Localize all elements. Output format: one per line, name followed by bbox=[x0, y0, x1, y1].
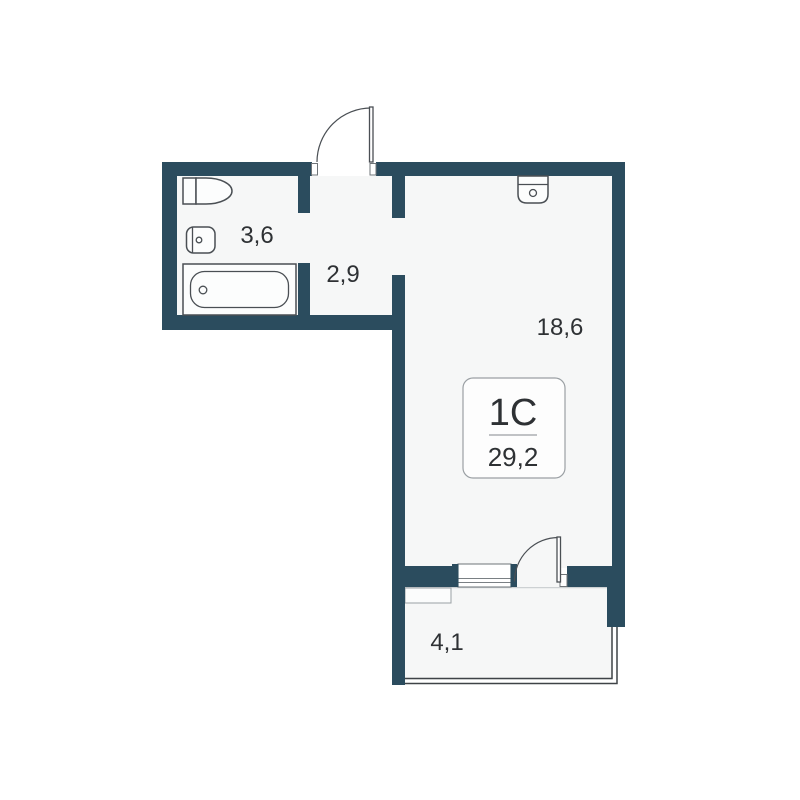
wall-hallway-stub bbox=[392, 176, 405, 218]
wall-bathroom-partition-top bbox=[298, 176, 310, 213]
entrance-door-leaf bbox=[370, 107, 374, 162]
bathtub-icon bbox=[183, 264, 296, 315]
window-cap-right bbox=[511, 564, 518, 587]
balcony-doorway bbox=[517, 566, 560, 587]
unit-total-area-label: 29,2 bbox=[488, 442, 539, 472]
washbasin-icon bbox=[187, 227, 216, 253]
entrance-jamb-left bbox=[312, 164, 318, 176]
wall-top-right bbox=[376, 162, 625, 176]
entrance-door bbox=[312, 107, 377, 175]
wall-right bbox=[612, 162, 625, 627]
balcony-window bbox=[458, 564, 511, 587]
living-room-area-label: 18,6 bbox=[537, 314, 584, 341]
balcony-ledge bbox=[405, 588, 451, 603]
wall-window-left bbox=[405, 566, 455, 587]
wall-window-right bbox=[567, 566, 612, 587]
window-cap-left bbox=[452, 564, 459, 587]
floor-plan-page: 3,6 2,9 18,6 4,1 1С 29,2 bbox=[0, 0, 800, 800]
toilet-icon bbox=[183, 178, 232, 204]
hallway-floor bbox=[310, 176, 392, 315]
unit-info-box: 1С 29,2 bbox=[463, 378, 565, 478]
entrance-jamb-right bbox=[370, 164, 376, 176]
unit-type-label: 1С bbox=[489, 392, 538, 434]
wall-top-left bbox=[162, 162, 312, 176]
hallway-area-label: 2,9 bbox=[326, 261, 359, 288]
bathroom-doorway bbox=[298, 213, 310, 263]
floor-plan: 3,6 2,9 18,6 4,1 1С 29,2 bbox=[0, 0, 800, 800]
living-room-floor bbox=[405, 176, 612, 568]
bathroom-area-label: 3,6 bbox=[240, 222, 273, 249]
wall-bathroom-partition-bottom bbox=[298, 263, 310, 315]
wall-left bbox=[162, 176, 177, 330]
wall-living-left bbox=[392, 275, 405, 685]
window-frame bbox=[458, 564, 511, 587]
washbasin-body bbox=[187, 227, 216, 253]
wall-balcony-stub bbox=[607, 587, 623, 627]
balcony-door-leaf bbox=[557, 537, 561, 582]
balcony-area-label: 4,1 bbox=[430, 629, 463, 656]
kitchen-sink-icon bbox=[518, 176, 548, 203]
toilet-tank bbox=[183, 178, 196, 204]
entrance-door-swing-arc bbox=[317, 108, 371, 162]
hallway-passage bbox=[392, 218, 405, 275]
wall-bathroom-bottom bbox=[162, 315, 405, 330]
